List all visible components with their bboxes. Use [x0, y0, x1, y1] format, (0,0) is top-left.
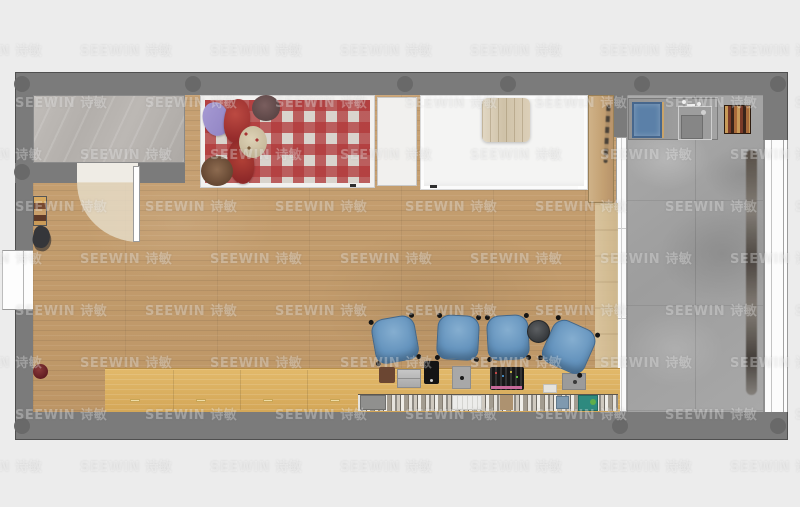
entry-door-leaf: [133, 166, 140, 242]
keyboard: [490, 367, 524, 390]
round-stool: [527, 320, 550, 343]
shoe-rack: [33, 196, 47, 226]
home-button: [430, 379, 433, 382]
blue-box: [556, 396, 569, 409]
wall-column: [14, 76, 30, 92]
drawer-seam: [173, 370, 174, 410]
watermark-text: SEEWIN 诗敏: [80, 40, 172, 59]
bed-corner-bracket: [578, 96, 587, 105]
bed-corner-bracket: [578, 180, 587, 189]
mouse-pad: [562, 373, 586, 390]
folded-quilt: [482, 98, 530, 142]
wall-column: [397, 76, 413, 92]
watermark-text: SEEWIN 诗敏: [600, 456, 692, 475]
note-pad: [452, 366, 471, 389]
bed-detail-mark: [430, 185, 437, 188]
blue-chair: [486, 314, 530, 361]
drawer-handle: [330, 399, 340, 402]
watermark-text: SEEWIN 诗敏: [210, 40, 302, 59]
drawer-seam: [307, 370, 308, 410]
bed-detail-mark: [350, 184, 356, 187]
blue-chair: [369, 314, 420, 366]
watermark-text: SEEWIN 诗敏: [0, 40, 42, 59]
wall-column: [612, 418, 628, 434]
bed-corner-bracket: [421, 180, 430, 189]
watermark-text: SEEWIN 诗敏: [795, 300, 800, 319]
wall-segment: [138, 163, 185, 183]
watermark-text: SEEWIN 诗敏: [80, 456, 172, 475]
blue-bath-mat: [632, 102, 662, 138]
red-plant-pot: [33, 364, 48, 379]
sink: [678, 106, 712, 140]
wall-column: [500, 76, 516, 92]
bathroom-floor: [627, 95, 763, 412]
plant-dot: [590, 399, 596, 405]
watermark-text: SEEWIN 诗敏: [600, 40, 692, 59]
caster-dot: [368, 319, 374, 325]
wall-column: [185, 76, 201, 92]
faucet: [687, 104, 695, 106]
watermark-text: SEEWIN 诗敏: [340, 456, 432, 475]
watermark-text: SEEWIN 诗敏: [795, 404, 800, 423]
drawer-handle: [196, 399, 206, 402]
watermark-text: SEEWIN 诗敏: [795, 196, 800, 215]
tablet: [424, 361, 439, 384]
faucet-dot: [682, 100, 686, 104]
watermark-text: SEEWIN 诗敏: [470, 456, 562, 475]
paper-sheet: [543, 384, 557, 393]
wall-column: [634, 76, 650, 92]
white-books: [452, 395, 482, 410]
teal-storage-box: [578, 395, 598, 411]
patterned-round-pillow: [239, 126, 267, 158]
drawer-handle: [263, 399, 273, 402]
watermark-text: SEEWIN 诗敏: [470, 40, 562, 59]
floor-plan-canvas: SEEWIN 诗敏SEEWIN 诗敏SEEWIN 诗敏SEEWIN 诗敏SEEW…: [0, 0, 800, 507]
door-threshold: [77, 163, 138, 183]
drawer-seam: [240, 370, 241, 410]
bed-corner-bracket: [421, 96, 430, 105]
faucet-knob: [701, 110, 706, 115]
bottle-shelf: [724, 105, 751, 134]
blue-chair: [436, 314, 480, 361]
desk-mat: [379, 367, 395, 383]
entry-alcove-floor: [33, 95, 185, 163]
watermark-text: SEEWIN 诗敏: [730, 40, 800, 59]
brown-round-pillow: [201, 156, 233, 186]
drawer-handle: [130, 399, 140, 402]
watermark-text: SEEWIN 诗敏: [730, 456, 800, 475]
hanging-towels: [746, 150, 757, 395]
wall-column: [14, 164, 30, 180]
right-window: [763, 140, 788, 412]
file-box: [360, 395, 386, 410]
faucet-dot: [697, 102, 701, 106]
watermark-text: SEEWIN 诗敏: [340, 40, 432, 59]
left-window: [2, 250, 33, 310]
mouse-dot: [573, 380, 577, 384]
sink-basin: [681, 115, 703, 139]
dark-round-pillow: [252, 95, 280, 121]
watermark-text: SEEWIN 诗敏: [0, 456, 42, 475]
watermark-text: SEEWIN 诗敏: [795, 92, 800, 111]
wall-segment: [612, 95, 627, 137]
caster-dot: [485, 315, 490, 320]
caster-dot: [437, 313, 442, 318]
shelf-gap: [500, 395, 513, 410]
wall-column: [14, 418, 30, 434]
white-closet-panel: [377, 97, 417, 186]
laptop: [397, 369, 421, 388]
wrist-rest: [491, 386, 522, 389]
pad-dot: [460, 376, 464, 380]
wall-column: [770, 76, 786, 92]
wall-column: [770, 418, 786, 434]
watermark-text: SEEWIN 诗敏: [210, 456, 302, 475]
